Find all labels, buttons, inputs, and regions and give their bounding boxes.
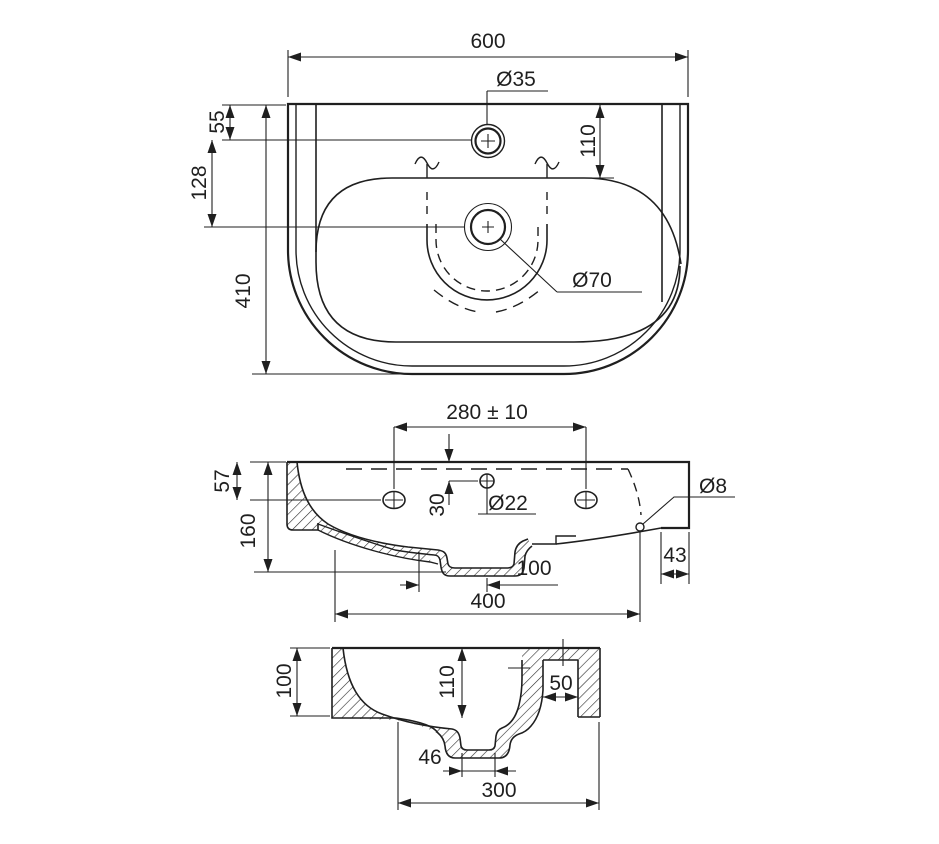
fixing-hole-left [383,492,405,509]
dim-channel-width: 50 [543,672,578,702]
inner-shell [343,648,522,750]
dim-43-label: 43 [663,544,686,567]
dim-faucet-to-drain: 128 [188,140,464,227]
dim-rim-to-overflow: 30 [426,434,478,517]
back-wall-hatch [578,660,600,717]
dim-46-label: 46 [418,746,441,769]
dim-280-label: 280 ± 10 [446,401,528,424]
dim-deck-to-bowl: 110 [552,105,614,178]
front-section-view: Ø22 Ø8 280 ± 10 30 57 160 [211,401,735,622]
tap-platform [415,157,559,312]
drain-dia-label: Ø70 [572,269,612,292]
dim-410-label: 410 [232,273,255,308]
dim-128-label: 128 [188,165,211,200]
fixing-hole-right [575,492,597,509]
dim-300-label: 300 [481,779,516,802]
dim-110-label: 110 [577,124,600,157]
deck-ledge-curve [316,178,681,264]
faucet-dia-label: Ø35 [496,68,536,91]
dim-57-label: 57 [211,469,234,492]
dim-bowl-depth: 110 [436,648,467,718]
dim-55-label: 55 [206,110,229,133]
overflow-hole: Ø22 [478,474,536,515]
dim-30-label: 30 [426,493,449,516]
deck-hatch [522,648,600,660]
dim-50-label: 50 [549,672,572,695]
overflow-dia-label: Ø22 [488,492,528,515]
label-faucet-dia: Ø35 [487,68,548,124]
label-drain-dia: Ø70 [500,239,642,292]
side-fixing-hole: Ø8 [636,475,735,531]
washbasin-technical-drawing: 600 Ø35 110 55 128 410 [0,0,939,844]
hidden-back-curve [628,469,641,515]
dim-depth: 410 [232,105,490,374]
dim-width-label: 600 [470,30,505,53]
dim-160-label: 160 [237,513,260,548]
drawing-canvas: 600 Ø35 110 55 128 410 [0,0,939,844]
dim-sec-100-label: 100 [273,663,296,698]
dim-bolt-spacing: 280 ± 10 [394,401,586,489]
dim-sec-110-label: 110 [436,665,459,698]
dim-400-label: 400 [470,590,505,613]
dim-section-rim-height: 100 [273,648,330,716]
dim-wall-offset: 43 [661,532,689,584]
side-section-view: 100 110 50 46 300 [273,639,600,810]
faucet-hole [472,125,505,158]
dim-100-label: 100 [516,557,551,580]
fixing-hole-dia-label: Ø8 [699,475,727,498]
dim-rim-to-faucet: 55 [206,105,471,140]
top-view: 600 Ø35 110 55 128 410 [188,30,688,374]
dim-width: 600 [288,30,688,97]
